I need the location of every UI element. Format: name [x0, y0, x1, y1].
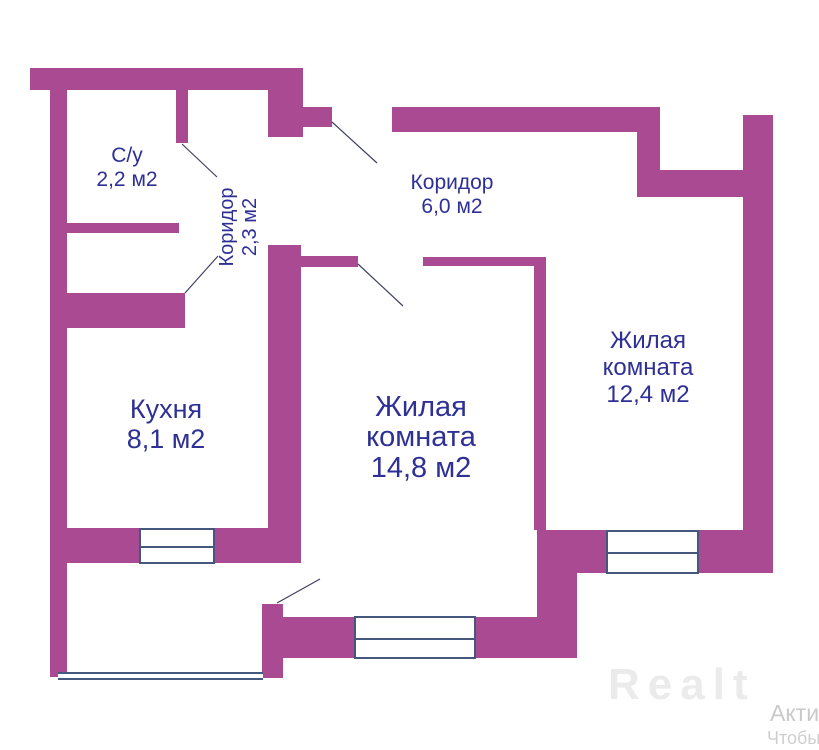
corridor-main-name: Коридор [367, 171, 537, 195]
entrance-door-swing [332, 122, 377, 163]
kitchen-label: Кухня 8,1 м2 [76, 394, 256, 454]
living-room-1-label: Жилая комната 14,8 м2 [316, 392, 526, 483]
living-room-2-label: Жилая комната 12,4 м2 [548, 328, 748, 409]
living-room-1-area: 14,8 м2 [316, 453, 526, 483]
living-room-2-name: Жилая [548, 328, 748, 355]
balcony-door-swing [277, 579, 320, 603]
living-room-2-area: 12,4 м2 [548, 382, 748, 409]
living-room-2-name2: комната [548, 355, 748, 382]
living-room-1-door-swing [358, 264, 403, 306]
realt-watermark-logo: Realt [608, 660, 756, 710]
corridor-small-name: Коридор [216, 188, 239, 267]
corridor-small-label: Коридор 2,3 м2 [216, 188, 262, 267]
corridor-main-area: 6,0 м2 [367, 195, 537, 219]
watermark-caption-line1: Акти [770, 700, 819, 727]
bathroom-area: 2,2 м2 [57, 168, 197, 192]
bathroom-name: С/у [57, 144, 197, 168]
living-room-1-name: Жилая [316, 392, 526, 422]
corridor-small-area: 2,3 м2 [239, 188, 262, 267]
living-room-1-name2: комната [316, 422, 526, 452]
watermark-caption-line2: Чтобы [767, 728, 819, 749]
floor-plan: С/у 2,2 м2 Коридор 2,3 м2 Коридор 6,0 м2… [0, 0, 819, 750]
bathroom-label: С/у 2,2 м2 [57, 144, 197, 191]
kitchen-door-swing [185, 256, 218, 293]
corridor-main-label: Коридор 6,0 м2 [367, 171, 537, 218]
kitchen-area: 8,1 м2 [76, 424, 256, 454]
kitchen-name: Кухня [76, 394, 256, 424]
